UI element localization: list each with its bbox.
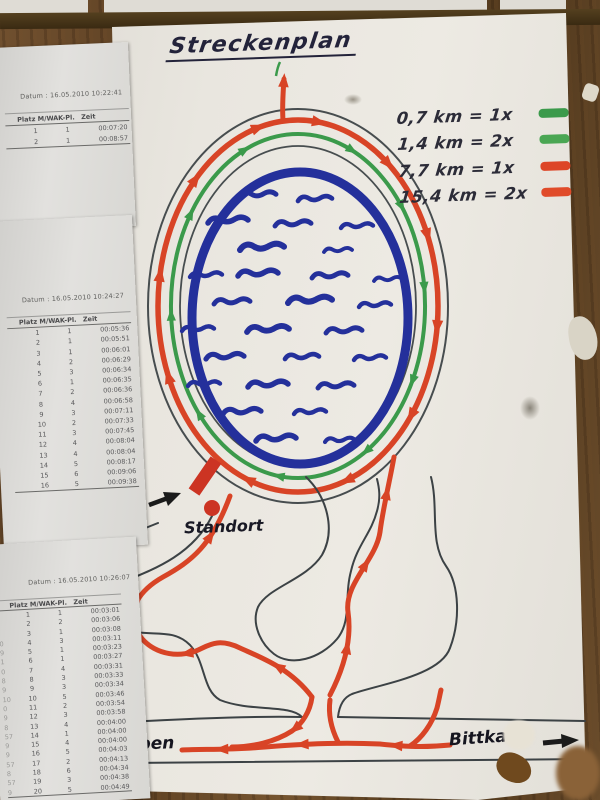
white-splotch xyxy=(503,720,535,750)
result-table: Platz M/WAK-Pl.Zeit1100:05:362100:05:513… xyxy=(7,311,139,493)
standort-dot xyxy=(204,500,220,516)
start-finish-pointer-arrow xyxy=(149,492,181,506)
stain-smudge xyxy=(344,94,362,105)
board-light-patch xyxy=(556,746,600,800)
pinboard-photo: Streckenplan 0,7 km = 1x 1,4 km = 2x 7,7… xyxy=(0,0,600,800)
result-sheet-1: Datum : 16.05.2010 10:22:41 Platz M/WAK-… xyxy=(0,42,136,232)
sheet-date: Datum : 16.05.2010 10:24:27 xyxy=(22,291,124,304)
legend-text: 0,7 km = 1x xyxy=(396,105,514,128)
legend-swatch-green xyxy=(539,134,569,144)
legend-text: 7,7 km = 1x xyxy=(398,158,516,181)
result-table: Platz M/WAK-Pl.Zeit1100:07:202100:08:57 xyxy=(5,108,130,149)
green-route-lake-loop xyxy=(171,134,425,478)
sheet-date: Datum : 16.05.2010 10:26:07 xyxy=(28,573,131,587)
result-sheet-2: Datum : 16.05.2010 10:24:27 Platz M/WAK-… xyxy=(0,215,148,552)
legend-swatch-red xyxy=(540,161,570,171)
result-sheet-3: Datum : 16.05.2010 10:26:07 Platz M/WAK-… xyxy=(0,537,150,800)
legend-swatch-green xyxy=(538,108,568,118)
green-mark-top xyxy=(276,62,280,76)
legend-text: 1,4 km = 2x xyxy=(397,131,515,154)
result-table: Platz M/WAK-Pl.Zeit1100:03:012200:03:063… xyxy=(0,594,132,799)
legend-text: 15,4 km = 2x xyxy=(398,184,528,208)
stain-smudge xyxy=(520,396,540,420)
standort-label: Standort xyxy=(184,516,264,538)
sheet-date: Datum : 16.05.2010 10:22:41 xyxy=(20,88,122,100)
legend-swatch-red xyxy=(541,187,571,197)
start-finish-bar xyxy=(194,460,216,492)
distance-legend: 0,7 km = 1x 1,4 km = 2x 7,7 km = 1x 15,4… xyxy=(396,99,572,211)
lake-outline xyxy=(192,172,408,464)
